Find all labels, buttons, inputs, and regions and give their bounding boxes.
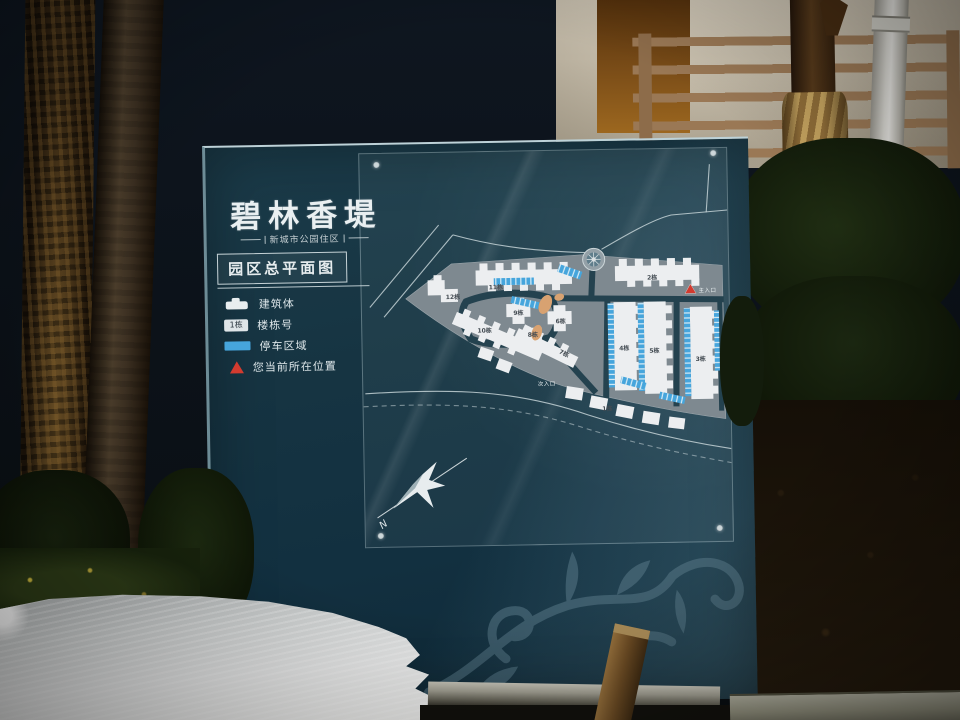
svg-text:11栋: 11栋 [489, 283, 503, 291]
shrub-overlap [720, 296, 764, 426]
photo-scene: 碧林香堤 新城市公园住区 园区总平面图 建筑体 1栋 楼栋号 停车区域 [0, 0, 960, 720]
compass: N [376, 458, 468, 532]
svg-text:10栋: 10栋 [477, 326, 491, 334]
location-icon [230, 361, 244, 373]
map-panel: 主入口 次入口 12栋 11栋 2栋 10栋 9栋 6栋 8栋 7栋 4栋 5栋… [358, 147, 734, 548]
compass-north-label: N [378, 518, 391, 532]
dark-frame [420, 705, 732, 720]
svg-text:3栋: 3栋 [696, 355, 706, 363]
subtitle-decor-tick [344, 234, 345, 242]
building-icon [224, 297, 250, 310]
legend-label: 楼栋号 [257, 316, 293, 333]
svg-text:12栋: 12栋 [446, 293, 460, 301]
legend-label: 停车区域 [259, 337, 307, 354]
subtitle-decor-line [241, 239, 261, 240]
drain-pipe [869, 0, 909, 161]
svg-text:6栋: 6栋 [555, 317, 565, 325]
svg-text:8栋: 8栋 [528, 331, 538, 339]
floral-pattern [420, 536, 758, 704]
secondary-entrance-label: 次入口 [538, 379, 556, 387]
legend-item-number: 1栋 楼栋号 [224, 316, 374, 332]
subtitle-decor-tick [265, 235, 266, 243]
sign-subtitle-text: 新城市公园住区 [270, 232, 340, 246]
svg-text:5栋: 5栋 [649, 347, 659, 355]
site-plan-map: 主入口 次入口 12栋 11栋 2栋 10栋 9栋 6栋 8栋 7栋 4栋 5栋… [359, 148, 733, 547]
plan-title-chip: 园区总平面图 [217, 251, 348, 284]
svg-text:1栋: 1栋 [602, 405, 612, 413]
svg-text:2栋: 2栋 [647, 273, 657, 281]
map-legend: 建筑体 1栋 楼栋号 停车区域 您当前所在位置 [224, 295, 375, 382]
mulch-ground [736, 400, 960, 710]
legend-item-location: 您当前所在位置 [225, 358, 375, 374]
building-number-icon: 1栋 [224, 319, 248, 331]
svg-text:9栋: 9栋 [513, 309, 523, 317]
roundabout [582, 248, 604, 270]
svg-text:4栋: 4栋 [619, 344, 629, 352]
legend-item-parking: 停车区域 [224, 337, 374, 353]
legend-label: 建筑体 [259, 295, 295, 312]
plan-title-rule [217, 285, 369, 289]
legend-item-building: 建筑体 [224, 295, 374, 311]
parking-icon [224, 341, 250, 350]
legend-label: 您当前所在位置 [253, 357, 337, 374]
concrete-curb [730, 690, 960, 720]
